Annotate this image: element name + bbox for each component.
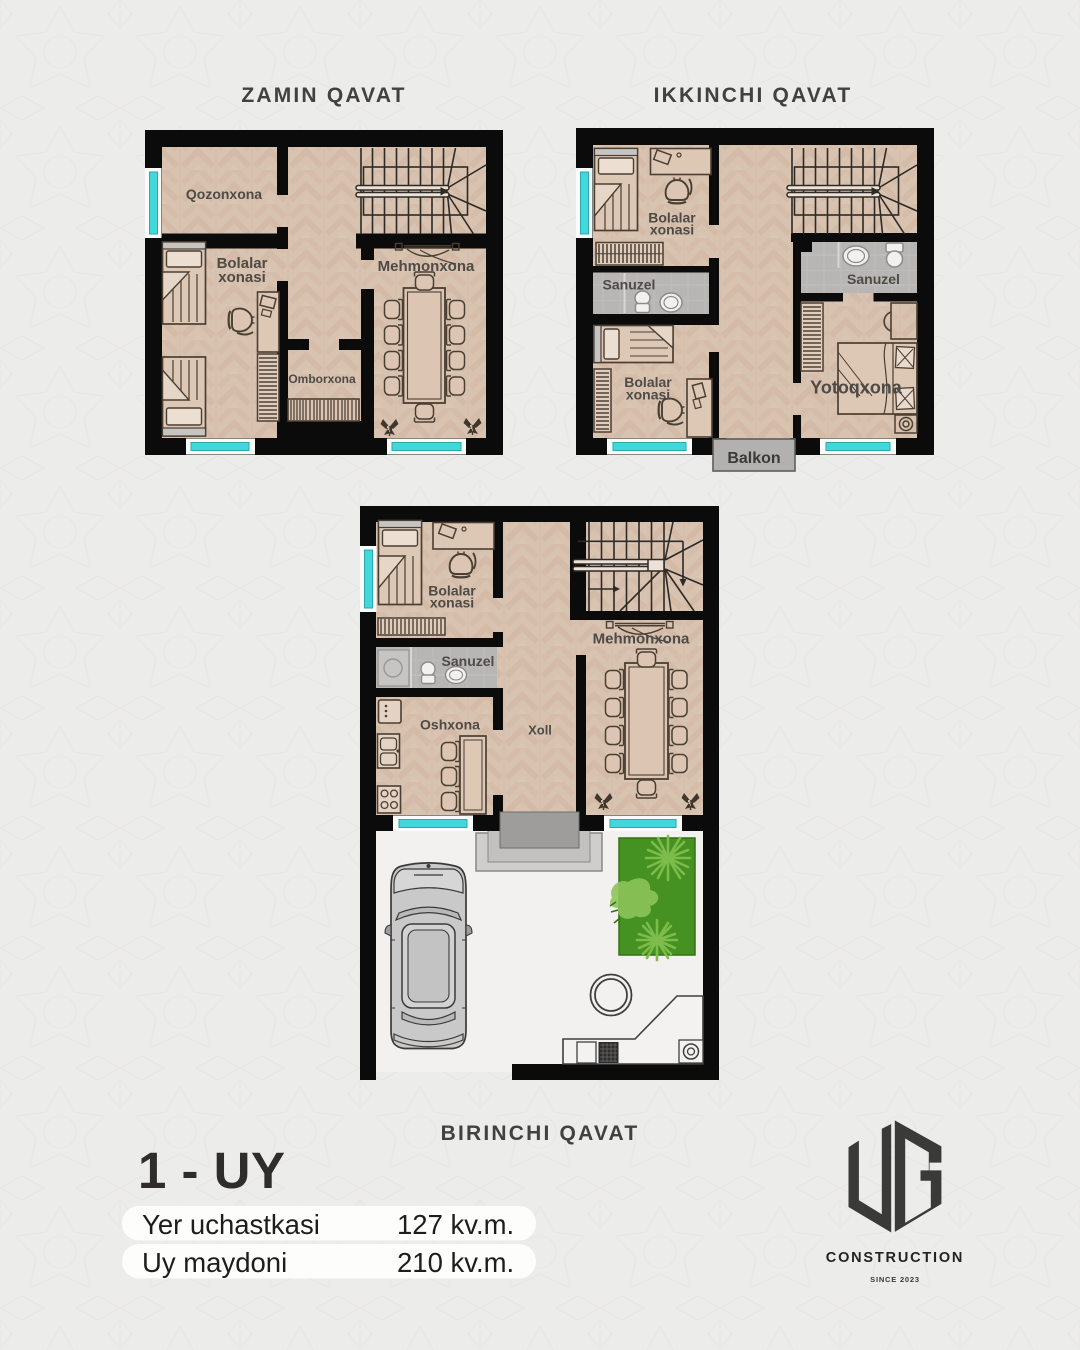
svg-text:BIRINCHI QAVAT: BIRINCHI QAVAT	[441, 1122, 640, 1145]
svg-text:210 kv.m.: 210 kv.m.	[397, 1247, 514, 1278]
svg-text:xonasi: xonasi	[430, 595, 474, 611]
svg-text:IKKINCHI QAVAT: IKKINCHI QAVAT	[654, 84, 853, 107]
svg-text:Sanuzel: Sanuzel	[442, 653, 495, 669]
svg-text:Uy maydoni: Uy maydoni	[142, 1247, 287, 1278]
svg-text:1 - UY: 1 - UY	[138, 1142, 286, 1199]
svg-text:SINCE 2023: SINCE 2023	[870, 1275, 920, 1284]
svg-text:Sanuzel: Sanuzel	[603, 277, 656, 293]
svg-text:Yer uchastkasi: Yer uchastkasi	[142, 1209, 320, 1240]
svg-text:Xoll: Xoll	[528, 723, 552, 738]
svg-text:xonasi: xonasi	[218, 269, 266, 286]
svg-text:Qozonxona: Qozonxona	[186, 186, 262, 202]
svg-text:CONSTRUCTION: CONSTRUCTION	[826, 1250, 964, 1266]
svg-text:Balkon: Balkon	[727, 450, 780, 467]
svg-text:ZAMIN QAVAT: ZAMIN QAVAT	[241, 84, 406, 107]
svg-text:Omborxona: Omborxona	[288, 372, 356, 386]
svg-text:Mehmonxona: Mehmonxona	[593, 631, 690, 648]
svg-text:Sanuzel: Sanuzel	[847, 271, 900, 287]
svg-text:Yotoqxona: Yotoqxona	[810, 378, 903, 398]
svg-text:Oshxona: Oshxona	[420, 717, 480, 733]
svg-text:xonasi: xonasi	[626, 387, 670, 403]
svg-text:xonasi: xonasi	[650, 222, 694, 238]
svg-text:127 kv.m.: 127 kv.m.	[397, 1209, 514, 1240]
